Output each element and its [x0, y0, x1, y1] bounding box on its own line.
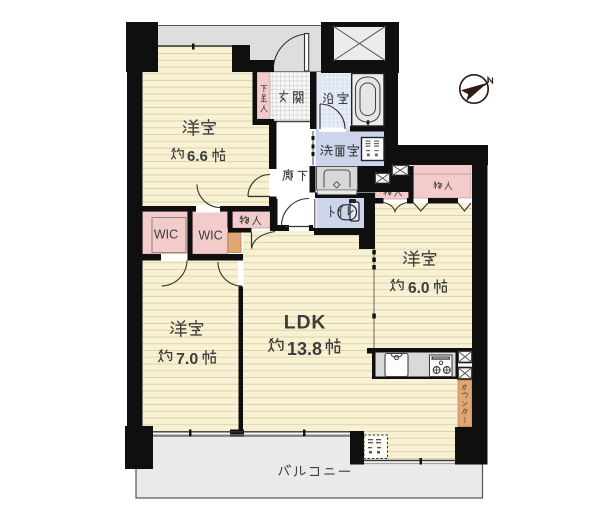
svg-text:6.0: 6.0 — [408, 280, 430, 297]
svg-text:WIC: WIC — [198, 229, 222, 243]
svg-text:6.6: 6.6 — [187, 148, 208, 165]
svg-text:13.8: 13.8 — [287, 339, 322, 359]
svg-text:WIC: WIC — [154, 228, 178, 242]
svg-text:LDK: LDK — [284, 312, 326, 334]
svg-text:7.0: 7.0 — [176, 351, 198, 368]
